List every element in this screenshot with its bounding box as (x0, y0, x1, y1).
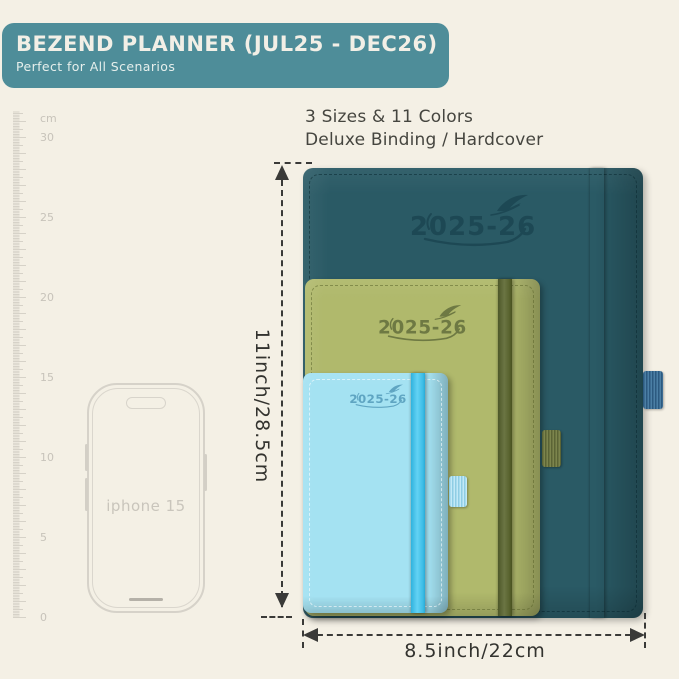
elastic-band (590, 168, 604, 618)
arrow-down-icon (275, 593, 289, 608)
ruler-ticks (13, 108, 43, 624)
dimension-tick (261, 616, 292, 618)
elastic-band (411, 373, 425, 613)
height-dimension-label: 11inch/28.5cm (251, 321, 273, 491)
dimension-tick (274, 162, 312, 164)
ruler-label: 25 (40, 211, 54, 225)
ruler: cm 302520151050 (13, 108, 63, 628)
header-banner: BEZEND PLANNER (JUL25 - DEC26) Perfect f… (2, 23, 449, 88)
power-button-icon (204, 454, 207, 491)
cover-logo: 2025-26 (376, 303, 469, 344)
cover-logo: 2025-26 (348, 383, 408, 410)
ruler-label: 0 (40, 611, 47, 625)
home-indicator (129, 598, 163, 602)
cover-logo: 2025-26 (407, 192, 539, 250)
product-image: BEZEND PLANNER (JUL25 - DEC26) Perfect f… (0, 0, 679, 679)
width-dimension-line (307, 634, 641, 636)
iphone-outline: iphone 15 (87, 383, 205, 613)
volume-button-icon (85, 444, 88, 471)
dynamic-island-icon (126, 397, 166, 409)
pen-loop (542, 430, 561, 467)
ruler-label: 30 (40, 131, 54, 145)
arrow-left-icon (303, 628, 318, 642)
height-dimension-line (281, 170, 283, 607)
year-label: 2025-26 (349, 392, 406, 406)
width-dimension-label: 8.5inch/22cm (385, 640, 565, 662)
pen-loop (449, 476, 467, 507)
pen-loop (643, 371, 663, 409)
feature-text: 3 Sizes & 11 Colors Deluxe Binding / Har… (305, 106, 543, 152)
feature-line-binding: Deluxe Binding / Hardcover (305, 129, 543, 152)
ruler-label: 15 (40, 371, 54, 385)
arrow-right-icon (630, 628, 645, 642)
year-label: 2025-26 (410, 212, 536, 242)
banner-subtitle: Perfect for All Scenarios (16, 59, 449, 74)
year-label: 2025-26 (378, 317, 467, 338)
banner-title: BEZEND PLANNER (JUL25 - DEC26) (16, 32, 449, 56)
volume-button-icon (85, 478, 88, 511)
iphone-label: iphone 15 (93, 497, 199, 515)
feature-line-sizes: 3 Sizes & 11 Colors (305, 106, 543, 129)
ruler-label: 10 (40, 451, 54, 465)
ruler-label: 5 (40, 531, 47, 545)
ruler-label: 20 (40, 291, 54, 305)
iphone-screen: iphone 15 (92, 388, 200, 608)
arrow-up-icon (275, 165, 289, 180)
elastic-band (498, 279, 512, 616)
planner-small-blue: 2025-26 (303, 373, 448, 613)
